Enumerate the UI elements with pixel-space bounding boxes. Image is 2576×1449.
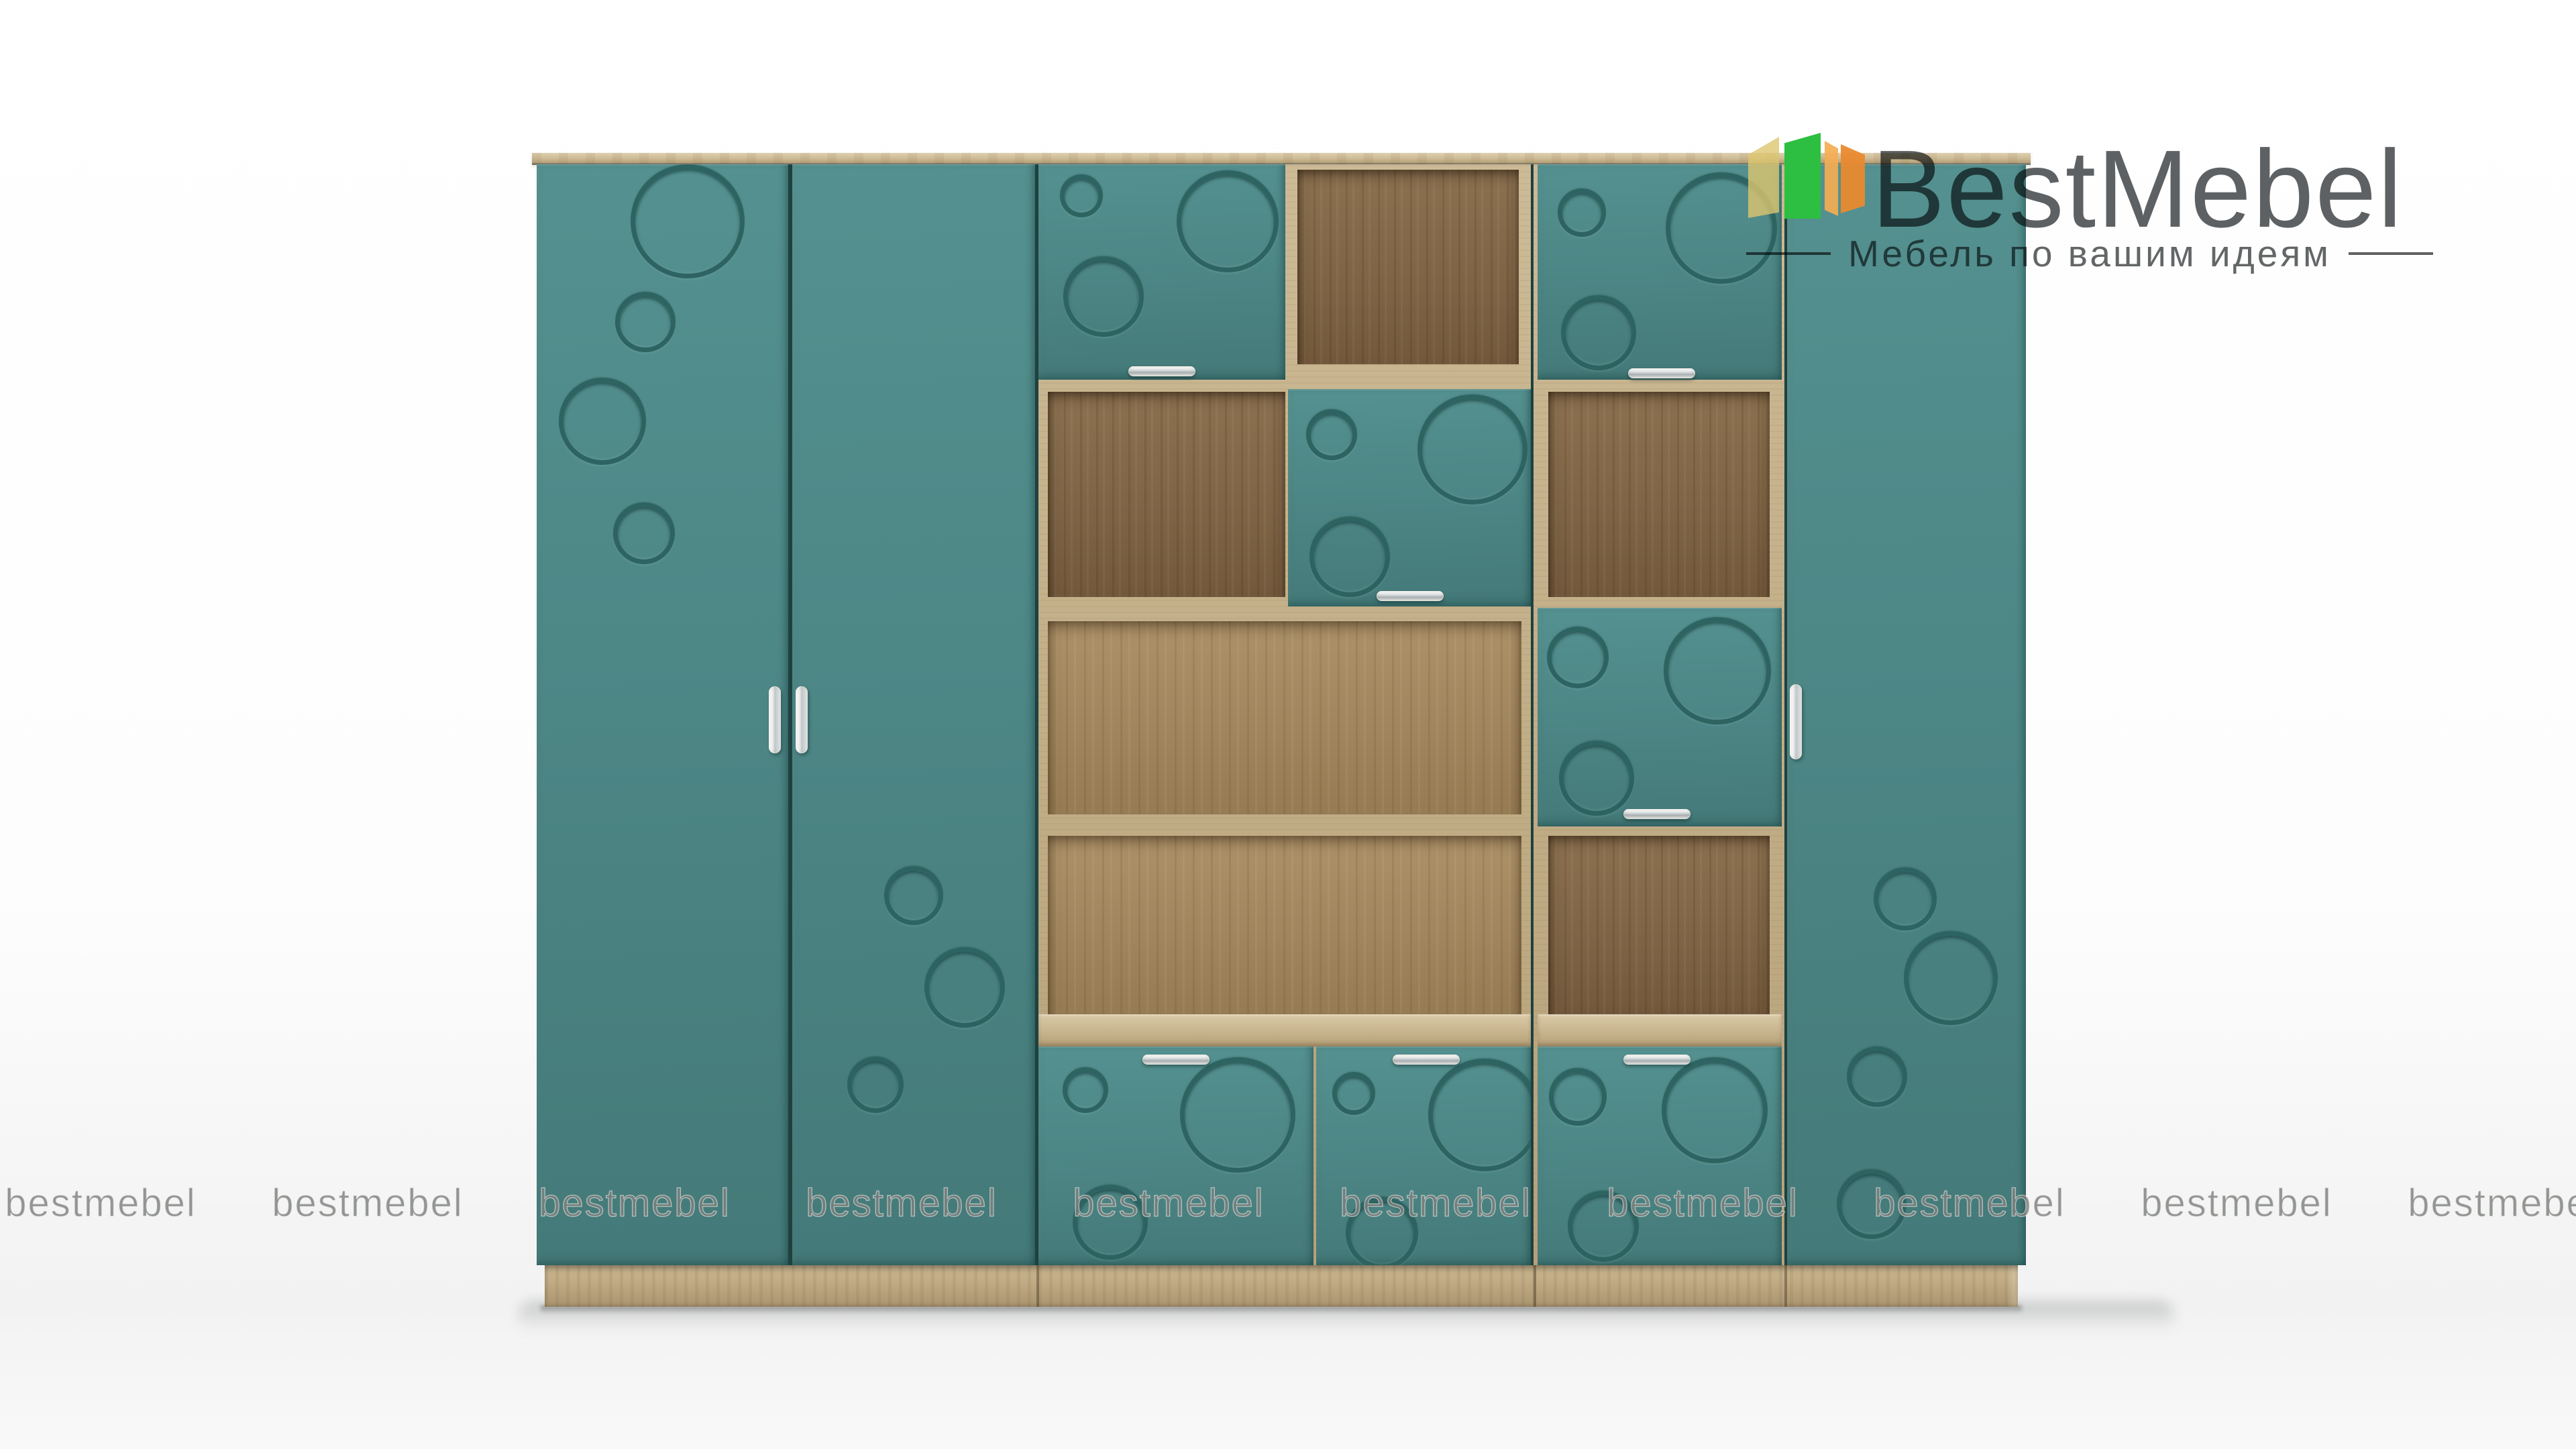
shelf-front-edge [1538,1014,1782,1046]
decor-circle [1180,1057,1295,1173]
door-handle [1628,368,1695,378]
open-niche-lower [1048,836,1521,1014]
door-handle [1623,1055,1690,1065]
decor-circle [1549,1068,1607,1126]
decor-circle [1309,517,1390,597]
door-handle [1377,591,1444,601]
logo-subtitle-row: Мебель по вашим идеям [1743,232,2436,275]
door-handle [1623,809,1690,819]
decor-circle [1306,409,1357,460]
watermark: bestmebel [2408,1181,2576,1226]
decor-circle [613,502,675,564]
cabinet-door-bottom-left [1038,1046,1313,1265]
door-handle [1128,366,1195,376]
decor-circle [1332,1072,1375,1115]
open-shelf-column-lower [1548,836,1770,1014]
watermark: bestmebel [1340,1181,1532,1226]
decor-circle [924,947,1005,1028]
decor-circle [615,292,676,352]
door-handle [1393,1055,1460,1065]
decor-circle [847,1057,904,1113]
logo-bar-light-orange-icon [1825,141,1838,216]
wardrobe-door-right [1787,164,2026,1265]
watermark: bestmebel [5,1181,197,1226]
decor-circle [1561,295,1636,370]
plinth-seam [1784,1265,1787,1307]
decor-circle [1417,394,1527,504]
wardrobe-door-left-2 [792,164,1035,1265]
open-shelf-left [1048,392,1285,597]
open-shelf-cube-top [1297,170,1519,364]
decor-circle [1559,741,1634,816]
logo-bar-orange-icon [1841,138,1865,213]
decor-circle [884,866,943,925]
decor-circle [1874,867,1937,930]
decor-circle [1664,617,1771,724]
shelf-front-edge [1038,1014,1531,1046]
door-handle [1790,684,1802,759]
watermark: bestmebel [1073,1181,1265,1226]
plinth-seam [1036,1265,1039,1307]
decor-circle [1177,170,1279,272]
decor-circle [1063,1067,1108,1113]
watermark: bestmebel [272,1181,464,1226]
open-niche-upper [1048,621,1521,814]
plinth-base [545,1265,2018,1307]
watermark: bestmebel [1874,1181,2065,1226]
decor-circle [559,378,646,465]
cabinet-door-column-middle [1538,608,1782,826]
decor-circle [1558,189,1606,237]
logo-title: BestMebel [1872,134,2404,244]
cabinet-door-column-bottom [1538,1046,1782,1265]
cabinet-door-bottom-middle [1316,1046,1531,1265]
shelf-column-right [1534,164,1784,1265]
wardrobe-door-left-1 [537,164,788,1265]
bestmebel-logo: BestMebel Мебель по вашим идеям [1741,127,2442,275]
decor-circle [1547,627,1609,688]
decor-circle [631,164,745,278]
shelf-unit-middle [1038,164,1531,1265]
subtitle-dash-left [1746,252,1831,255]
plinth-seam [1534,1265,1536,1307]
decor-circle [1060,174,1103,217]
decor-circle [1904,931,1998,1025]
watermark: bestmebel [539,1181,731,1226]
decor-circle [1063,256,1144,337]
door-handle [1142,1055,1210,1065]
door-handle [769,686,781,753]
cabinet-door-top-middle [1038,164,1285,380]
product-scene: BestMebel Мебель по вашим идеям bestmebe… [0,0,2576,1449]
logo-subtitle: Мебель по вашим идеям [1848,232,2331,275]
decor-circle [1662,1057,1768,1163]
cabinet-door-mid-right [1288,389,1531,606]
watermark: bestmebel [1607,1181,1799,1226]
logo-bar-green-icon [1784,133,1821,219]
watermark: bestmebel [2141,1181,2332,1226]
watermark: bestmebel [806,1181,998,1226]
door-handle [796,686,808,753]
subtitle-dash-right [2349,252,2433,255]
decor-circle [1847,1046,1907,1107]
logo-bar-yellow-icon [1748,137,1779,218]
open-shelf-column-upper [1548,392,1770,597]
decor-circle [1428,1059,1531,1171]
